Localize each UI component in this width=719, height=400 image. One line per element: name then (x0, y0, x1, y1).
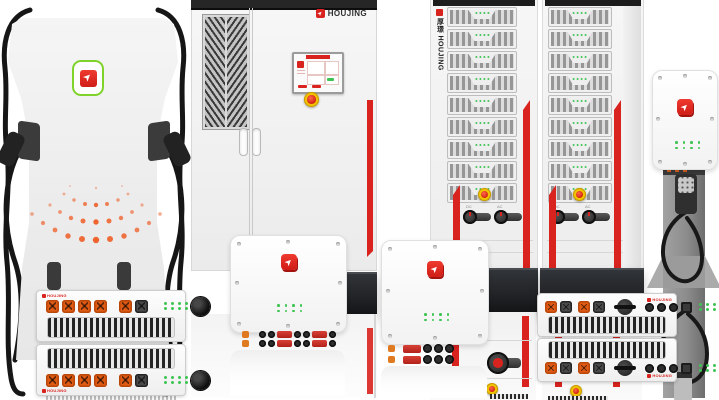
rack-top-panel (433, 0, 535, 6)
wallbox-charger: ➤ (230, 235, 347, 333)
rectifier-module (447, 7, 517, 27)
rectifier-module (447, 29, 517, 49)
bottom-vent (548, 396, 608, 400)
door-handle (239, 128, 248, 156)
power-module: HOUJING (537, 293, 677, 337)
vent-grille (548, 316, 666, 334)
cooling-fan (191, 371, 210, 390)
emergency-stop-button (304, 92, 319, 107)
bottom-vent (490, 394, 528, 399)
screen-header-bar (306, 55, 331, 59)
emergency-stop-button (478, 188, 491, 201)
main-breaker-switch (487, 352, 521, 374)
status-leds (699, 303, 719, 311)
rectifier-module (548, 29, 612, 49)
brand-icon: ➤ (316, 9, 325, 18)
power-rack-cabinet-left: 厚璟 HOUJING (430, 0, 538, 271)
rectifier-module (447, 139, 517, 159)
cabinet-base (343, 272, 377, 314)
rotary-knob (617, 360, 633, 376)
brand-icon: ➤ (281, 254, 297, 270)
wallbox-reflection (381, 366, 487, 398)
power-module: HOUJING (36, 290, 186, 342)
display-screen (292, 52, 344, 94)
power-module: HOUJING (36, 344, 186, 396)
brand-icon (436, 9, 443, 16)
ventilation-grille (202, 14, 250, 130)
status-leds (699, 364, 719, 372)
door-seam (249, 8, 250, 270)
rectifier-module (447, 73, 517, 93)
unit-reflection (46, 396, 176, 400)
ac-breaker-switch: AC (494, 210, 522, 224)
power-module-unit-right: HOUJING HOUJING (537, 293, 677, 382)
brand-vertical-label: 厚璟 HOUJING (433, 9, 446, 117)
status-leds (164, 302, 188, 310)
brand-mini-logo: HOUJING (647, 373, 672, 378)
brand-mini-logo: HOUJING (42, 388, 67, 393)
vent-grille (548, 341, 666, 359)
red-accent-stripe (367, 328, 373, 394)
rectifier-module (548, 95, 612, 115)
module-connectors (46, 370, 179, 390)
emergency-stop-button (573, 188, 586, 201)
status-leds (675, 141, 700, 149)
screen-brand-icon (297, 61, 304, 68)
red-accent-stripe (614, 100, 621, 270)
door-handle (252, 128, 261, 156)
module-connectors (46, 296, 179, 316)
pile-foot (47, 262, 61, 290)
dc-breaker-switch: DC (463, 210, 491, 224)
brand-name: HOUJING (328, 9, 367, 18)
pile-foot (117, 262, 131, 290)
red-accent-stripe (549, 185, 556, 270)
charging-cabinet: ➤ HOUJING (191, 0, 377, 271)
rectifier-module (548, 139, 612, 159)
power-rack-cabinet-right: DC AC (542, 0, 644, 271)
wallbox-terminals (242, 331, 336, 347)
wallbox-terminals (388, 344, 454, 364)
red-accent-stripe (523, 100, 530, 270)
power-module-stack (548, 7, 612, 203)
power-module-unit-left: HOUJING HOUJING (36, 290, 186, 396)
brand-mini-logo: HOUJING (647, 297, 672, 302)
rectifier-module (548, 7, 612, 27)
cooling-fan (191, 297, 210, 316)
ac-breaker-switch: AC (582, 210, 610, 224)
wallbox-reflection (230, 350, 345, 395)
red-accent-stripe (367, 100, 373, 257)
wallbox-charger: ➤ (381, 240, 489, 345)
vent-grille (47, 317, 175, 338)
rectifier-module (548, 117, 612, 137)
status-leds (277, 304, 302, 312)
power-module-stack (447, 7, 517, 203)
status-leds (164, 376, 188, 384)
brand-icon: ➤ (677, 99, 693, 115)
power-module: HOUJING (537, 338, 677, 382)
rectifier-module (447, 51, 517, 71)
rectifier-module (447, 117, 517, 137)
rotary-knob (617, 299, 633, 315)
rectifier-module (548, 51, 612, 71)
red-accent-stripe (522, 316, 529, 387)
rectifier-module (548, 73, 612, 93)
brand-icon: ➤ (427, 261, 443, 277)
rectifier-module (447, 95, 517, 115)
status-leds (424, 313, 449, 321)
product-showcase: ➤ HOUJING 厚璟 HOUJING (0, 0, 719, 400)
brand-logo: ➤ HOUJING (316, 9, 367, 18)
wallbox-charger: ➤ (652, 70, 718, 170)
rectifier-module (447, 161, 517, 181)
vent-grille (47, 348, 175, 369)
charging-gun (675, 174, 697, 214)
rectifier-module (548, 161, 612, 181)
